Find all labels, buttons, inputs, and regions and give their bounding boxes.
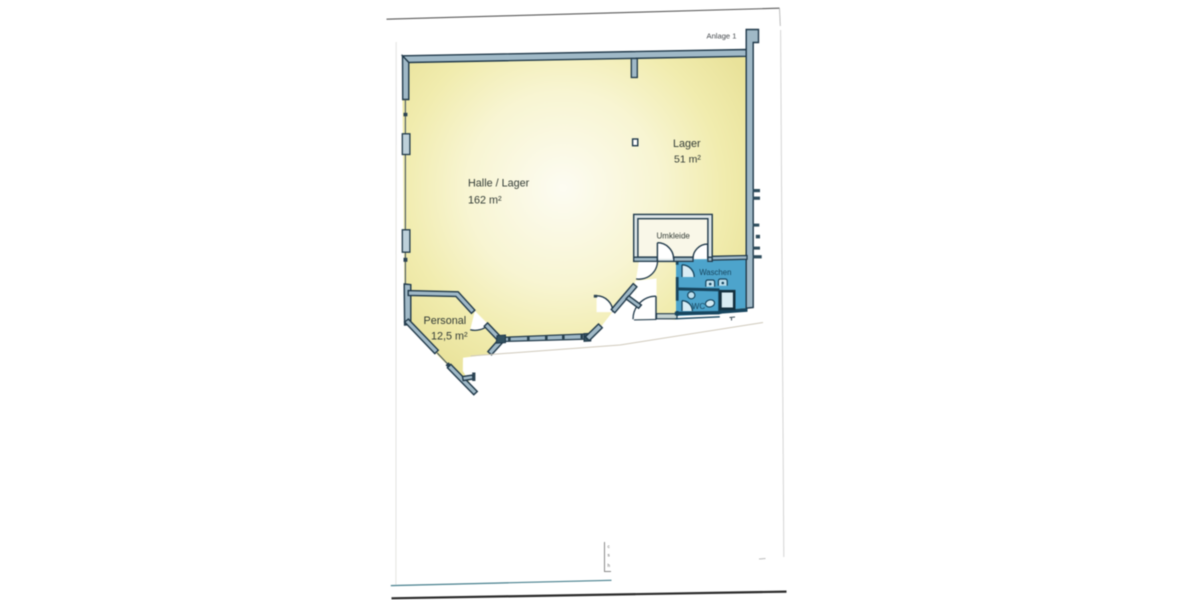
svg-text:12,5 m²: 12,5 m² [431, 331, 468, 343]
svg-text:WC: WC [692, 302, 706, 311]
svg-text:Halle / Lager: Halle / Lager [468, 178, 530, 190]
svg-text:Anlage 1: Anlage 1 [707, 32, 737, 41]
svg-text:Umkleide: Umkleide [657, 232, 691, 241]
svg-text:Personal: Personal [424, 315, 467, 327]
svg-text:51 m²: 51 m² [674, 154, 701, 166]
svg-text:Lager: Lager [673, 138, 701, 150]
svg-text:162 m²: 162 m² [468, 195, 502, 207]
svg-text:Waschen: Waschen [699, 268, 731, 277]
